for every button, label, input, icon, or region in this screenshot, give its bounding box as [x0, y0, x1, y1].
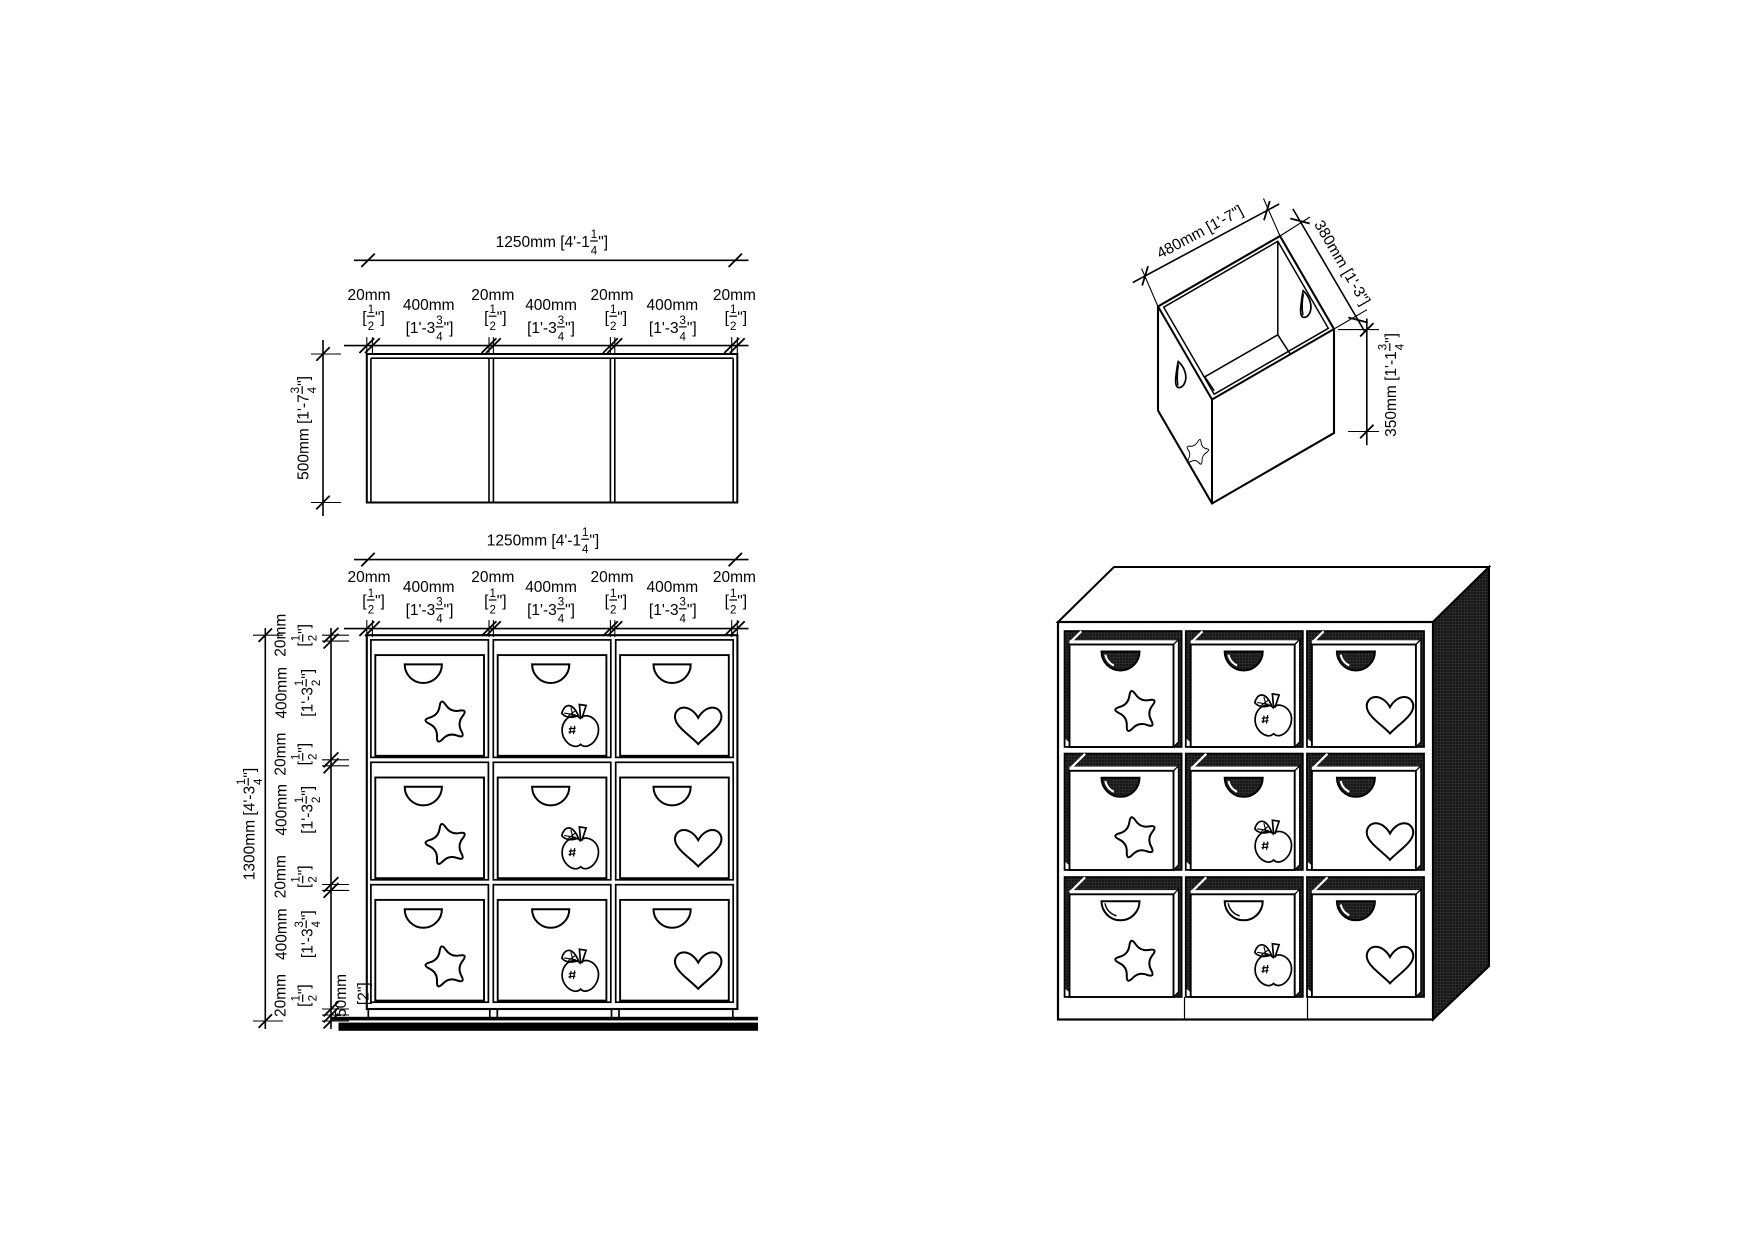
svg-text:400mm: 400mm [273, 784, 290, 836]
svg-text:20mm: 20mm [713, 569, 756, 586]
svg-text:"]: "] [497, 309, 507, 326]
svg-text:2: 2 [610, 321, 616, 333]
svg-text:1: 1 [368, 588, 374, 600]
svg-text:[: [ [605, 309, 610, 326]
svg-text:"]: "] [598, 234, 608, 251]
svg-text:"]: "] [444, 320, 454, 337]
svg-text:3: 3 [680, 597, 686, 609]
svg-text:20mm: 20mm [591, 569, 634, 586]
svg-text:4: 4 [680, 332, 687, 344]
svg-text:1: 1 [730, 304, 736, 316]
svg-text:"]: "] [589, 532, 599, 549]
svg-text:2: 2 [730, 605, 736, 617]
svg-text:20mm: 20mm [272, 614, 289, 657]
svg-text:2: 2 [307, 635, 319, 641]
svg-text:"]: "] [737, 309, 747, 326]
svg-text:400mm: 400mm [647, 297, 699, 314]
svg-text:[1'-3: [1'-3 [527, 602, 557, 619]
svg-text:1: 1 [236, 779, 248, 785]
svg-text:1: 1 [294, 797, 306, 803]
svg-text:1250mm [4'-1: 1250mm [4'-1 [496, 234, 590, 251]
svg-text:1: 1 [490, 588, 496, 600]
svg-text:1: 1 [291, 754, 303, 760]
svg-text:[: [ [296, 1002, 313, 1007]
svg-text:"]: "] [296, 743, 313, 753]
svg-text:2: 2 [311, 680, 323, 686]
svg-text:400mm: 400mm [525, 297, 577, 314]
svg-text:1: 1 [490, 304, 496, 316]
svg-text:400mm: 400mm [525, 579, 577, 596]
svg-text:20mm: 20mm [471, 569, 514, 586]
svg-text:1: 1 [294, 680, 306, 686]
svg-text:1: 1 [730, 588, 736, 600]
svg-text:"]: "] [375, 593, 385, 610]
svg-text:1: 1 [610, 588, 616, 600]
svg-text:1: 1 [591, 229, 597, 241]
svg-text:2: 2 [730, 321, 736, 333]
svg-text:20mm: 20mm [713, 287, 756, 304]
svg-text:1: 1 [368, 304, 374, 316]
svg-text:"]: "] [241, 768, 258, 778]
svg-text:3: 3 [436, 597, 442, 609]
svg-text:1250mm [4'-1: 1250mm [4'-1 [487, 532, 581, 549]
svg-text:20mm: 20mm [272, 733, 289, 776]
svg-text:"]: "] [565, 602, 575, 619]
svg-text:[: [ [605, 593, 610, 610]
svg-text:4: 4 [311, 921, 323, 928]
svg-text:20mm: 20mm [272, 974, 289, 1017]
svg-text:[: [ [296, 883, 313, 888]
svg-text:1: 1 [582, 527, 588, 539]
svg-text:2: 2 [490, 605, 496, 617]
svg-text:[: [ [725, 309, 730, 326]
svg-text:3: 3 [436, 315, 442, 327]
svg-text:"]: "] [687, 320, 697, 337]
svg-text:50mm: 50mm [333, 974, 350, 1017]
svg-text:2: 2 [307, 876, 319, 882]
svg-text:2: 2 [490, 321, 496, 333]
svg-text:[: [ [484, 309, 489, 326]
svg-text:400mm: 400mm [273, 667, 290, 719]
svg-text:4: 4 [307, 386, 319, 393]
svg-text:"]: "] [296, 624, 313, 634]
svg-text:1: 1 [610, 304, 616, 316]
svg-text:1300mm [4'-3: 1300mm [4'-3 [241, 786, 258, 880]
svg-text:[: [ [296, 642, 313, 647]
svg-text:500mm [1'-7: 500mm [1'-7 [295, 394, 312, 480]
svg-text:"]: "] [295, 376, 312, 386]
svg-text:"]: "] [687, 602, 697, 619]
svg-text:"]: "] [444, 602, 454, 619]
svg-text:"]: "] [299, 910, 316, 920]
svg-text:20mm: 20mm [272, 855, 289, 898]
svg-text:"]: "] [296, 865, 313, 875]
svg-text:[1'-3: [1'-3 [649, 602, 679, 619]
svg-text:[: [ [725, 593, 730, 610]
svg-text:4: 4 [253, 778, 265, 785]
svg-text:"]: "] [737, 593, 747, 610]
svg-text:350mm [1'-1: 350mm [1'-1 [1383, 351, 1400, 437]
svg-text:4: 4 [558, 332, 565, 344]
svg-text:"]: "] [296, 984, 313, 994]
svg-text:400mm: 400mm [403, 579, 455, 596]
svg-text:20mm: 20mm [591, 287, 634, 304]
svg-text:2: 2 [307, 754, 319, 760]
svg-text:3: 3 [680, 315, 686, 327]
svg-text:[: [ [484, 593, 489, 610]
svg-text:[2"]: [2"] [355, 982, 372, 1005]
svg-text:[: [ [362, 309, 367, 326]
svg-text:400mm: 400mm [273, 908, 290, 960]
svg-text:[1'-3: [1'-3 [649, 320, 679, 337]
svg-text:4: 4 [558, 614, 565, 626]
svg-text:"]: "] [617, 309, 627, 326]
svg-text:2: 2 [311, 797, 323, 803]
svg-text:1: 1 [291, 995, 303, 1001]
svg-text:"]: "] [497, 593, 507, 610]
svg-text:"]: "] [299, 669, 316, 679]
svg-text:[1'-3: [1'-3 [527, 320, 557, 337]
svg-text:2: 2 [368, 321, 374, 333]
svg-text:"]: "] [375, 309, 385, 326]
svg-text:2: 2 [610, 605, 616, 617]
svg-text:[1'-3: [1'-3 [406, 320, 436, 337]
svg-text:4: 4 [436, 614, 443, 626]
svg-text:3: 3 [1378, 344, 1390, 350]
svg-text:"]: "] [617, 593, 627, 610]
svg-text:2: 2 [307, 995, 319, 1001]
svg-text:[1'-3: [1'-3 [406, 602, 436, 619]
svg-text:[1'-3: [1'-3 [299, 804, 316, 834]
svg-text:20mm: 20mm [471, 287, 514, 304]
svg-text:[1'-3: [1'-3 [299, 687, 316, 717]
svg-text:[1'-3: [1'-3 [299, 928, 316, 958]
svg-text:4: 4 [591, 246, 598, 258]
svg-text:4: 4 [680, 614, 687, 626]
svg-text:20mm: 20mm [348, 287, 391, 304]
svg-text:400mm: 400mm [647, 579, 699, 596]
svg-text:1: 1 [291, 876, 303, 882]
svg-text:3: 3 [558, 315, 564, 327]
svg-text:4: 4 [1395, 343, 1407, 350]
svg-text:"]: "] [299, 786, 316, 796]
svg-text:1: 1 [291, 635, 303, 641]
svg-text:4: 4 [436, 332, 443, 344]
svg-text:2: 2 [368, 605, 374, 617]
svg-text:3: 3 [558, 597, 564, 609]
svg-text:[: [ [296, 760, 313, 765]
svg-text:4: 4 [582, 544, 589, 556]
svg-text:400mm: 400mm [403, 297, 455, 314]
svg-text:[: [ [362, 593, 367, 610]
svg-text:3: 3 [294, 921, 306, 927]
svg-text:"]: "] [1383, 333, 1400, 343]
svg-text:"]: "] [565, 320, 575, 337]
svg-text:20mm: 20mm [348, 569, 391, 586]
svg-text:3: 3 [290, 387, 302, 393]
